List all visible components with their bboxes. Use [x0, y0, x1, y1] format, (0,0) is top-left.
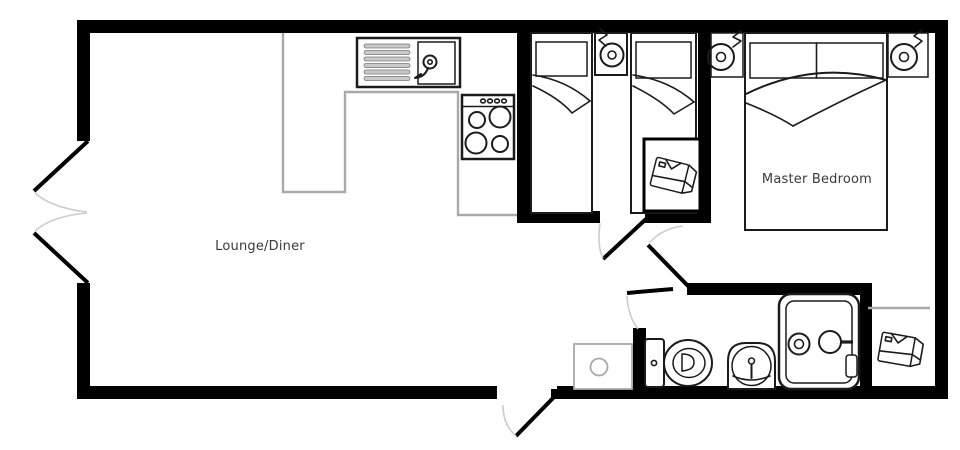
- door-leaf: [516, 394, 557, 436]
- shower-icon: [779, 294, 859, 389]
- floorplan-page: Lounge/Diner Master Bedroom: [0, 0, 960, 450]
- pedestal-basin-icon: [728, 343, 775, 389]
- toilet-icon: [645, 339, 712, 387]
- door-leaf: [603, 219, 646, 259]
- bedroom2-wardrobe: [644, 139, 700, 211]
- vanity-unit-icon: [574, 344, 632, 389]
- bedside-table: [888, 30, 928, 77]
- door-leaf: [627, 289, 673, 293]
- wall-left-lower: [77, 283, 90, 399]
- entrance-double-doors: [34, 141, 88, 283]
- floorplan-svg: [0, 0, 960, 450]
- wall-left-upper: [77, 20, 90, 141]
- wall-bathroom-right: [860, 283, 872, 399]
- shower-door-handle: [819, 331, 841, 353]
- single-bed-icon: [531, 33, 592, 213]
- door-swing-arc: [627, 296, 638, 329]
- master-bedroom-door: [648, 226, 691, 289]
- rear-entry-door: [503, 394, 557, 436]
- door-swing-arc: [35, 193, 87, 212]
- wall-right: [935, 20, 948, 399]
- door-leaf: [648, 245, 691, 289]
- bedside-table: [595, 29, 627, 75]
- double-bed-icon: [745, 33, 887, 230]
- door-leaf: [34, 233, 88, 283]
- door-swing-arc: [649, 226, 683, 243]
- wall-top: [77, 20, 948, 33]
- bathroom-door: [627, 289, 673, 329]
- bedside-table: [708, 31, 743, 77]
- bedroom2-door: [599, 219, 646, 259]
- room-label-lounge-diner: Lounge/Diner: [150, 239, 370, 254]
- door-swing-arc: [503, 405, 516, 436]
- door-swing-arc: [35, 213, 87, 231]
- wall-kitchen-bedroom: [517, 33, 530, 223]
- wall-bottom-left: [77, 386, 497, 399]
- door-swing-arc: [599, 223, 603, 258]
- closet-wardrobe: [868, 308, 930, 368]
- hob-icon: [462, 95, 514, 159]
- door-leaf: [34, 141, 88, 191]
- kitchen-sink-icon: [357, 38, 460, 87]
- room-label-master-bedroom: Master Bedroom: [707, 172, 927, 187]
